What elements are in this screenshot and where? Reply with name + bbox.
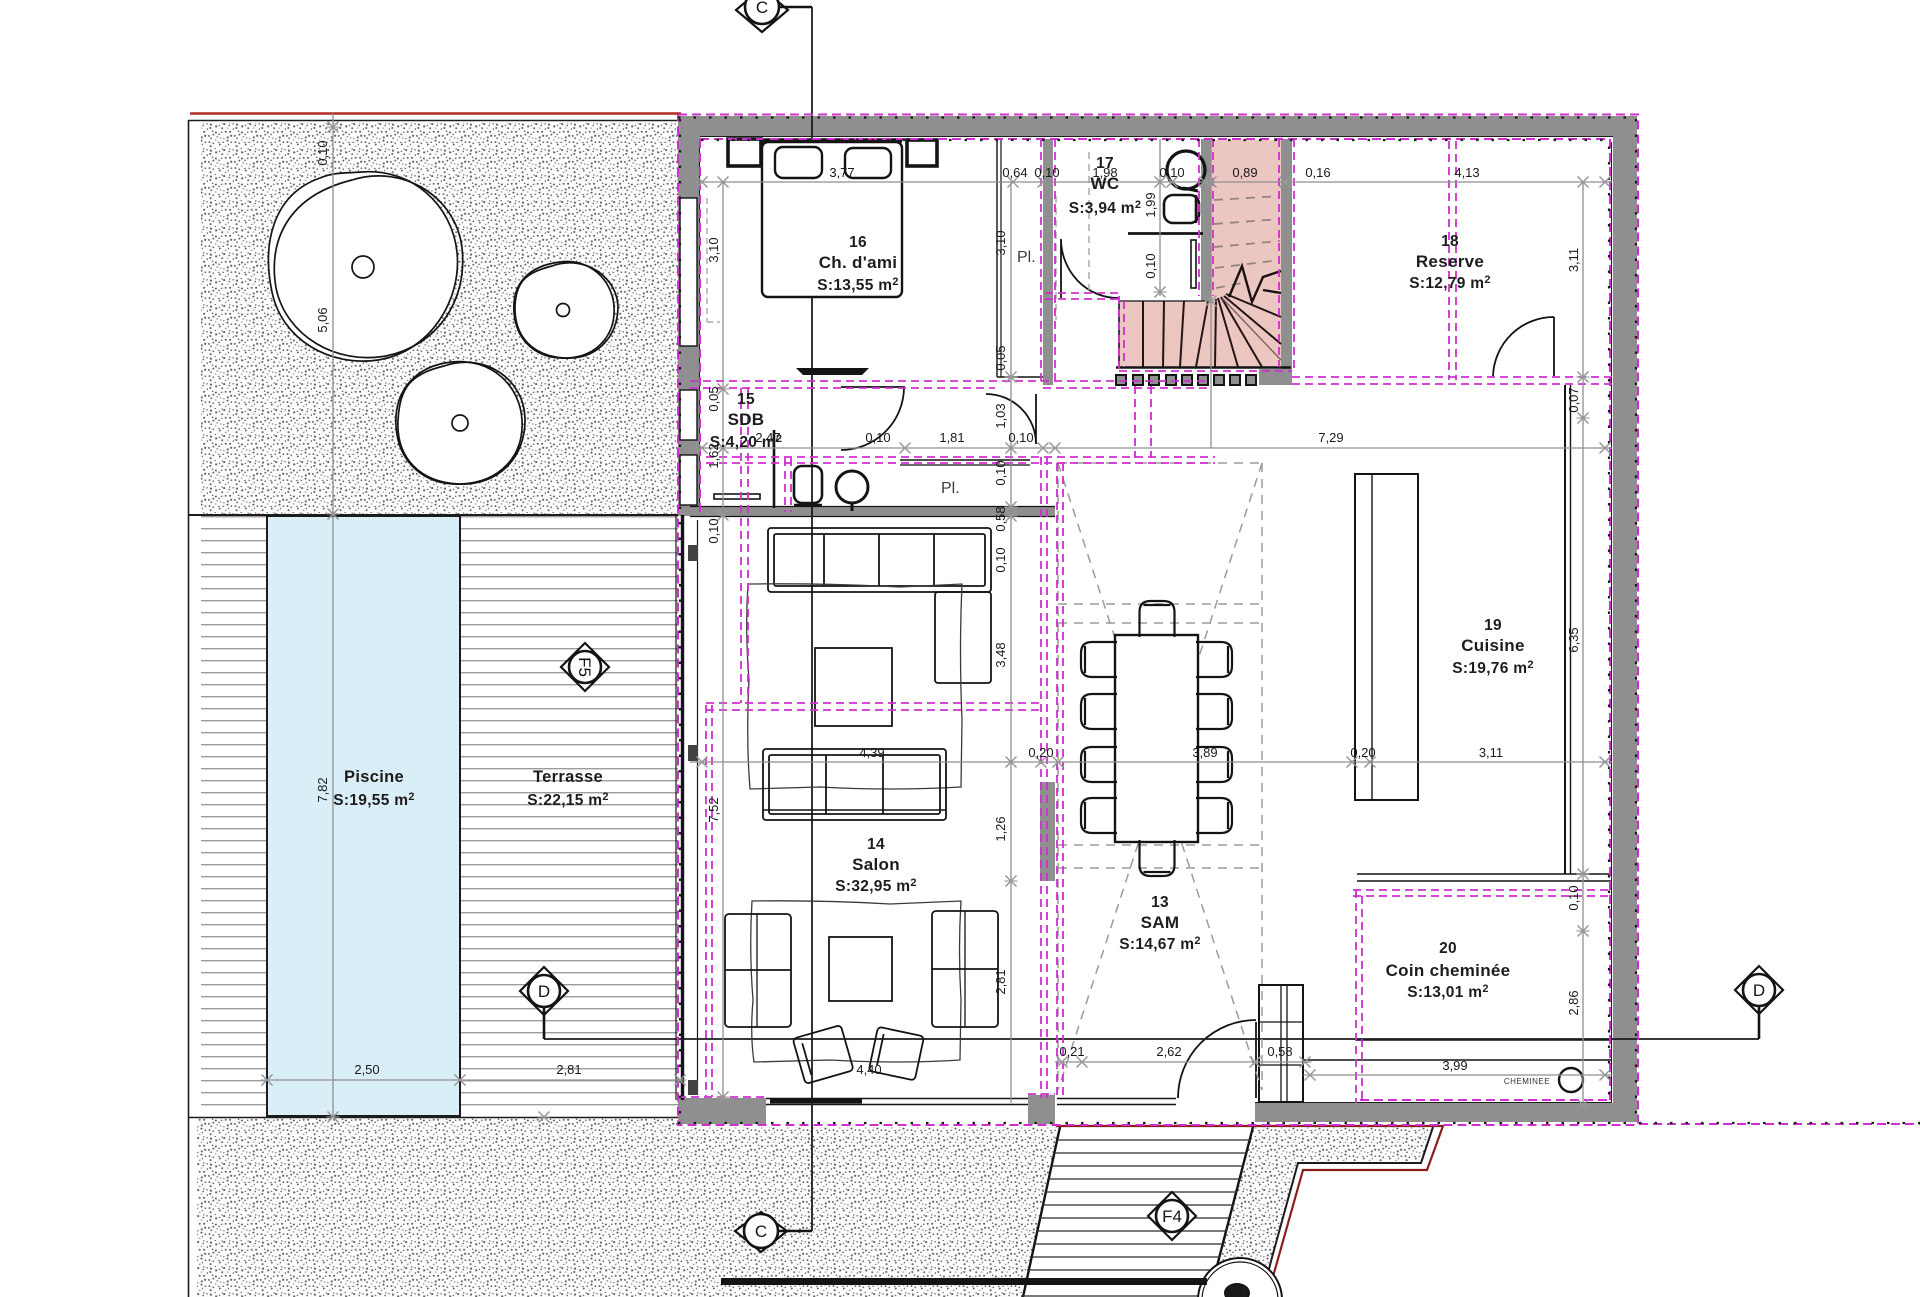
svg-text:4,40: 4,40 [856,1062,881,1077]
svg-text:16: 16 [849,234,867,251]
svg-text:15: 15 [737,391,755,408]
svg-text:0,10: 0,10 [1566,885,1581,910]
svg-text:3,11: 3,11 [1479,745,1503,760]
svg-text:D: D [538,982,550,1001]
svg-text:WC: WC [1091,174,1120,193]
svg-text:7,82: 7,82 [315,777,330,802]
svg-text:0,05: 0,05 [993,345,1008,370]
svg-text:2,50: 2,50 [354,1062,379,1077]
svg-text:3,11: 3,11 [1566,248,1581,272]
svg-text:7,29: 7,29 [1318,430,1343,445]
svg-text:S:22,15 m2: S:22,15 m2 [527,791,609,809]
svg-text:S:12,79 m2: S:12,79 m2 [1409,274,1491,292]
svg-text:4,13: 4,13 [1454,165,1479,180]
svg-text:1,81: 1,81 [939,430,964,445]
svg-text:3,10: 3,10 [706,237,721,262]
svg-text:0,89: 0,89 [1232,165,1257,180]
svg-text:2,81: 2,81 [993,969,1008,994]
svg-text:0,58: 0,58 [1267,1044,1292,1059]
svg-text:4,39: 4,39 [859,745,884,760]
svg-text:2,62: 2,62 [1156,1044,1181,1059]
svg-text:Pl.: Pl. [941,480,960,497]
svg-text:0,07: 0,07 [1566,387,1581,412]
svg-text:0,10: 0,10 [865,430,890,445]
svg-text:S:14,67 m2: S:14,67 m2 [1119,935,1201,953]
svg-text:Cuisine: Cuisine [1461,636,1525,655]
svg-text:1,03: 1,03 [993,403,1008,428]
svg-text:2,81: 2,81 [556,1062,581,1077]
svg-text:0,10: 0,10 [315,140,330,165]
svg-text:1,26: 1,26 [993,816,1008,841]
svg-text:3,77: 3,77 [829,165,854,180]
svg-text:Ch. d'ami: Ch. d'ami [819,253,898,272]
svg-text:0,10: 0,10 [993,460,1008,485]
svg-text:18: 18 [1441,233,1459,250]
svg-text:CHEMINEE: CHEMINEE [1504,1077,1550,1086]
svg-text:C: C [755,1222,767,1241]
svg-text:Piscine: Piscine [344,768,404,786]
svg-text:S:4,20 m2: S:4,20 m2 [710,433,783,451]
svg-text:17: 17 [1096,155,1114,172]
svg-text:Coin cheminée: Coin cheminée [1386,961,1511,980]
svg-text:0,64: 0,64 [1002,165,1027,180]
svg-text:3,48: 3,48 [993,642,1008,667]
svg-text:5,06: 5,06 [315,307,330,332]
svg-text:0,10: 0,10 [993,547,1008,572]
svg-text:14: 14 [867,836,885,853]
svg-text:0,58: 0,58 [993,506,1008,531]
svg-text:0,21: 0,21 [1059,1044,1084,1059]
svg-text:Salon: Salon [852,855,900,874]
svg-text:S:19,55 m2: S:19,55 m2 [333,791,415,809]
svg-text:3,10: 3,10 [993,230,1008,255]
svg-text:19: 19 [1484,617,1502,634]
svg-text:0,10: 0,10 [706,518,721,543]
svg-text:1,99: 1,99 [1143,192,1158,217]
svg-text:F5: F5 [575,657,594,677]
svg-text:0,20: 0,20 [1350,745,1375,760]
svg-text:0,05: 0,05 [706,386,721,411]
svg-text:D: D [1753,981,1765,1000]
svg-text:0,10: 0,10 [1159,165,1184,180]
svg-text:0,16: 0,16 [1305,165,1330,180]
svg-text:Pl.: Pl. [1017,249,1036,266]
svg-text:Reserve: Reserve [1416,252,1484,271]
svg-text:S:32,95 m2: S:32,95 m2 [835,877,917,895]
svg-text:7,52: 7,52 [706,797,721,822]
svg-text:S:3,94 m2: S:3,94 m2 [1069,199,1142,217]
svg-text:0,10: 0,10 [1008,430,1033,445]
svg-text:2,86: 2,86 [1566,990,1581,1015]
svg-text:20: 20 [1439,940,1457,957]
svg-text:SDB: SDB [728,410,765,429]
svg-text:0,10: 0,10 [1034,165,1059,180]
svg-text:S:13,01 m2: S:13,01 m2 [1407,983,1489,1001]
svg-text:F4: F4 [1162,1207,1182,1226]
svg-text:3,89: 3,89 [1192,745,1217,760]
svg-text:Terrasse: Terrasse [533,768,603,786]
svg-text:0,10: 0,10 [1143,253,1158,278]
svg-text:13: 13 [1151,894,1169,911]
svg-text:SAM: SAM [1141,913,1180,932]
svg-text:3,99: 3,99 [1442,1058,1467,1073]
svg-text:S:13,55 m2: S:13,55 m2 [817,276,899,294]
svg-text:6,35: 6,35 [1566,627,1581,652]
svg-text:0,20: 0,20 [1028,745,1053,760]
svg-text:S:19,76 m2: S:19,76 m2 [1452,659,1534,677]
svg-text:C: C [756,0,768,17]
